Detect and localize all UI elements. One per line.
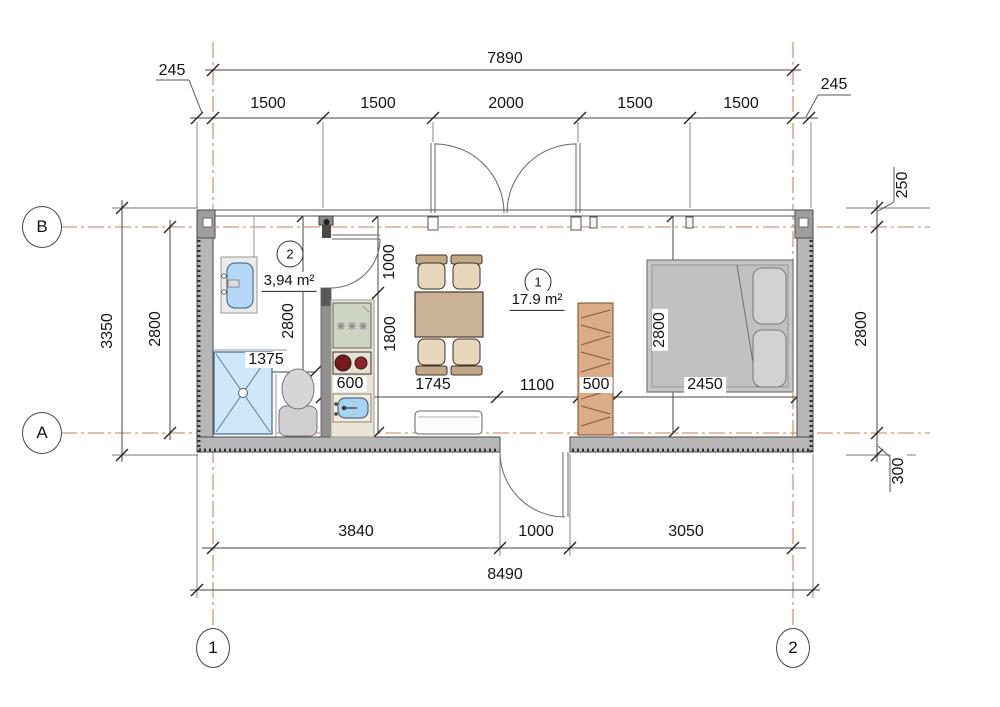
dim-int-wardrobe-width: 500: [580, 377, 613, 393]
kitchen-unit: [331, 300, 374, 437]
dim-top-seg-1: 1500: [247, 96, 289, 112]
axis-bubble-2: 2: [776, 628, 810, 668]
dim-int-bathroom-depth: 2800: [281, 300, 297, 342]
entrance-door: [500, 452, 568, 517]
bench: [415, 411, 482, 434]
room-area-main: 17.9 m²: [510, 291, 565, 311]
wardrobe: [578, 303, 613, 435]
dim-right-inner: 2800: [854, 308, 870, 350]
dim-left-overall: 3350: [100, 310, 116, 352]
dim-right-top-offset: 250: [895, 169, 911, 202]
dim-bottom-seg-2: 1000: [515, 524, 557, 540]
room-area-bathroom: 3,94 m²: [262, 272, 317, 292]
dim-int-kitchen-lower: 1800: [383, 313, 399, 355]
dim-top-overall: 7890: [484, 51, 526, 67]
pillow: [753, 268, 786, 324]
axis-bubble-1: 1: [196, 628, 230, 668]
toilet: [279, 369, 317, 436]
dim-int-entry-width: 1100: [517, 378, 557, 394]
mullion: [590, 217, 597, 228]
dim-right-bottom-offset: 300: [891, 455, 907, 488]
kitchen-sink: [333, 394, 371, 422]
wall-bottom-right: [570, 437, 813, 452]
chair: [416, 339, 447, 375]
window-wall: [197, 210, 813, 238]
dim-int-bed-width: 2450: [684, 377, 726, 393]
dim-bottom-seg-3: 3050: [665, 524, 707, 540]
dim-bottom-seg-1: 3840: [335, 524, 377, 540]
bathroom-door: [331, 235, 380, 288]
dim-int-bath-width: 1375: [245, 352, 287, 368]
cooktop: [333, 352, 371, 374]
washbasin: [221, 257, 257, 313]
dim-top-seg-4: 1500: [614, 96, 656, 112]
chair: [451, 255, 482, 289]
dim-top-left-offset: 245: [156, 63, 189, 79]
french-doors: [431, 143, 580, 213]
bed: [647, 260, 793, 392]
dim-int-bedroom-depth: 2800: [652, 309, 668, 351]
dim-int-dining-width: 1745: [412, 377, 454, 393]
dim-bottom-overall: 8490: [484, 567, 526, 583]
pillow: [753, 330, 786, 387]
floor-plan-canvas: 7890 245 245 1500 1500 2000 1500 1500 33…: [0, 0, 1000, 707]
washing-machine: [333, 303, 371, 348]
dim-int-kitchen-width: 600: [334, 376, 367, 392]
room-bubble-bathroom: 2: [277, 241, 304, 268]
drain-pipe: [319, 216, 333, 238]
dim-int-kitchen-upper: 1000: [382, 241, 398, 283]
dim-top-seg-3: 2000: [485, 96, 527, 112]
dim-top-seg-5: 1500: [720, 96, 762, 112]
axis-bubble-b: B: [22, 206, 62, 248]
dim-top-seg-2: 1500: [357, 96, 399, 112]
dim-left-inner: 2800: [148, 308, 164, 350]
dining-table: [415, 292, 483, 337]
chair: [416, 255, 447, 289]
door-post-right: [571, 217, 581, 230]
door-post-left: [428, 217, 438, 230]
mullion: [686, 217, 693, 228]
axis-bubble-a: A: [22, 412, 62, 454]
dim-top-right-offset: 245: [818, 77, 851, 93]
chair: [451, 339, 482, 375]
dining-set: [415, 255, 483, 375]
